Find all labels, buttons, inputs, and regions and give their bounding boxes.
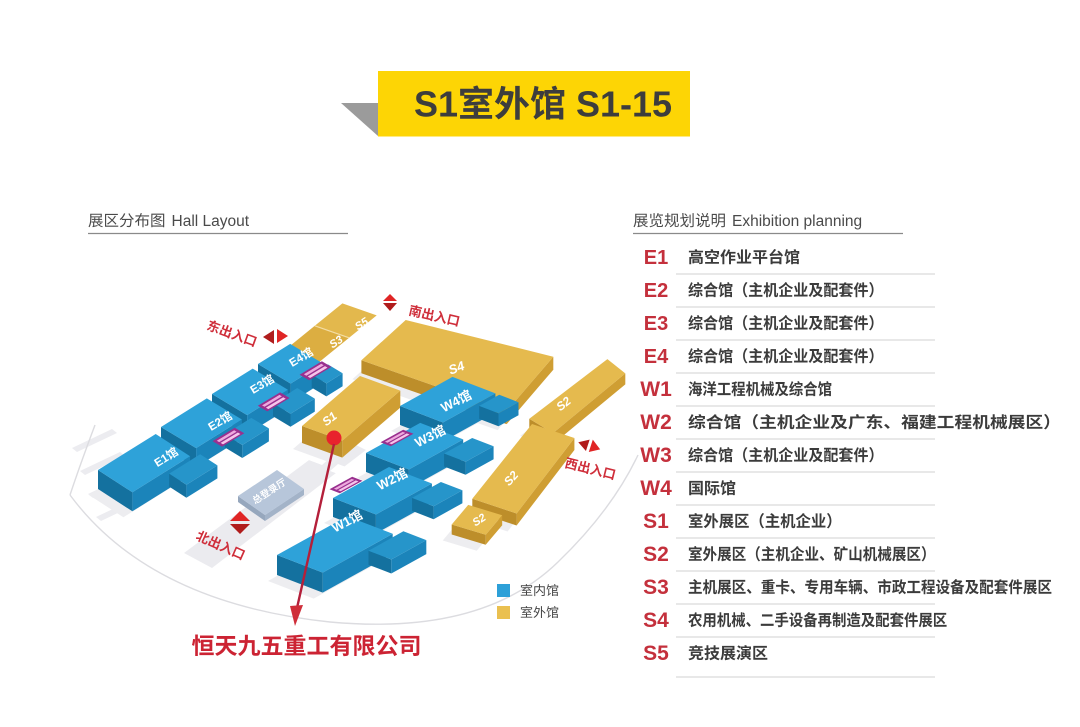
svg-text:S5: S5 — [643, 642, 669, 665]
svg-text:Exhibition planning: Exhibition planning — [732, 213, 862, 230]
svg-text:S1: S1 — [643, 510, 669, 533]
svg-text:E2: E2 — [644, 280, 668, 302]
svg-text:W3: W3 — [640, 444, 672, 467]
svg-text:W4: W4 — [640, 477, 672, 500]
svg-text:S2: S2 — [643, 543, 669, 566]
svg-text:E1: E1 — [644, 247, 668, 269]
svg-text:E3: E3 — [644, 313, 668, 335]
svg-text:S4: S4 — [643, 609, 669, 632]
svg-text:S1: S1 — [414, 84, 458, 125]
svg-text:S3: S3 — [643, 576, 669, 599]
svg-text:Hall Layout: Hall Layout — [172, 213, 250, 230]
svg-text:W2: W2 — [640, 411, 672, 434]
svg-text:S1-15: S1-15 — [576, 84, 672, 125]
svg-text:W1: W1 — [640, 378, 672, 401]
svg-text:E4: E4 — [644, 346, 669, 368]
